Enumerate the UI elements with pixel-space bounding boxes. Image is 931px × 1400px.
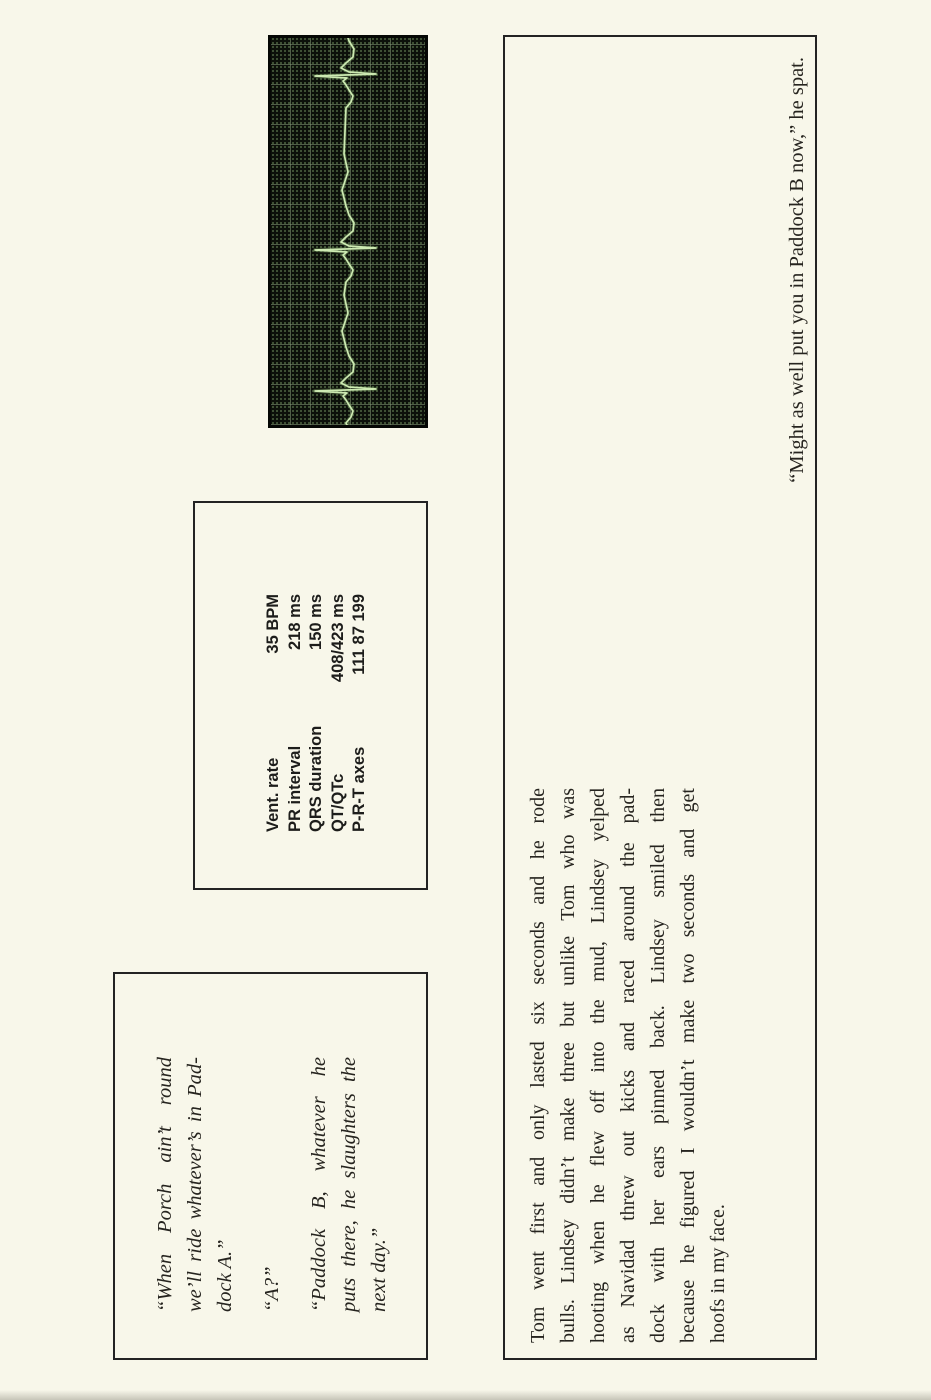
- dialogue-box: “When Porch ain’t roundwe’ll ride whatev…: [113, 972, 428, 1360]
- text-line: “Paddock B, whatever he: [304, 1057, 334, 1312]
- ecg-reading-row: PR interval218 ms: [285, 594, 307, 832]
- dialogue-paragraph: “A?”: [257, 1057, 287, 1312]
- story-paragraph: Tom went first and only lasted six secon…: [505, 788, 733, 1358]
- ecg-readings-box: Vent. rate35 BPMPR interval218 msQRS dur…: [193, 501, 428, 890]
- text-line: hooting when he flew off into the mud, L…: [583, 788, 613, 1343]
- ecg-reading-label: QRS duration: [306, 726, 328, 832]
- text-line: because he figured I wouldn’t make two s…: [673, 788, 703, 1343]
- text-line: puts there, he slaughters the: [334, 1057, 364, 1312]
- text-line: “When Porch ain’t round: [150, 1057, 180, 1312]
- ecg-reading-value: 408/423 ms: [328, 594, 350, 682]
- page-edge-shadow: [0, 1390, 931, 1400]
- ecg-reading-row: P-R-T axes111 87 199: [349, 594, 371, 832]
- text-line: bulls. Lindsey didn’t make three but unl…: [553, 788, 583, 1343]
- ecg-reading-row: QRS duration150 ms: [306, 594, 328, 832]
- rotated-canvas: “When Porch ain’t roundwe’ll ride whatev…: [0, 0, 931, 1400]
- ecg-reading-value: 150 ms: [306, 594, 328, 650]
- ecg-reading-label: QT/QTc: [328, 774, 350, 832]
- text-line: next day.”: [364, 1057, 394, 1312]
- ecg-strip: [268, 35, 428, 428]
- ecg-reading-label: Vent. rate: [263, 758, 285, 832]
- dialogue-text: “When Porch ain’t roundwe’ll ride whatev…: [115, 1057, 394, 1358]
- text-line: as Navidad threw out kicks and raced aro…: [613, 788, 643, 1343]
- text-line: dock with her ears pinned back. Lindsey …: [643, 788, 673, 1343]
- ecg-trace: [271, 38, 425, 425]
- closing-dialogue-line: “Might as well put you in Paddock B now,…: [784, 57, 810, 483]
- ecg-reading-label: PR interval: [285, 746, 307, 832]
- ecg-reading-value: 111 87 199: [349, 594, 371, 675]
- text-line: “A?”: [257, 1057, 287, 1312]
- story-box: Tom went first and only lasted six secon…: [503, 35, 817, 1360]
- text-line: hoofs in my face.: [703, 788, 733, 1343]
- dialogue-paragraph: “When Porch ain’t roundwe’ll ride whatev…: [150, 1057, 240, 1312]
- text-line: we’ll ride whatever’s in Pad-: [180, 1057, 210, 1312]
- ecg-reading-row: QT/QTc408/423 ms: [328, 594, 350, 832]
- ecg-readings-table: Vent. rate35 BPMPR interval218 msQRS dur…: [195, 503, 371, 888]
- text-line: dock A.”: [210, 1057, 240, 1312]
- dialogue-paragraph: “Paddock B, whatever heputs there, he sl…: [304, 1057, 394, 1312]
- ecg-reading-value: 218 ms: [285, 594, 307, 650]
- ecg-reading-value: 35 BPM: [263, 594, 285, 654]
- zine-page: “When Porch ain’t roundwe’ll ride whatev…: [0, 0, 931, 1400]
- ecg-reading-label: P-R-T axes: [349, 747, 371, 832]
- ecg-reading-row: Vent. rate35 BPM: [263, 594, 285, 832]
- text-line: Tom went first and only lasted six secon…: [523, 788, 553, 1343]
